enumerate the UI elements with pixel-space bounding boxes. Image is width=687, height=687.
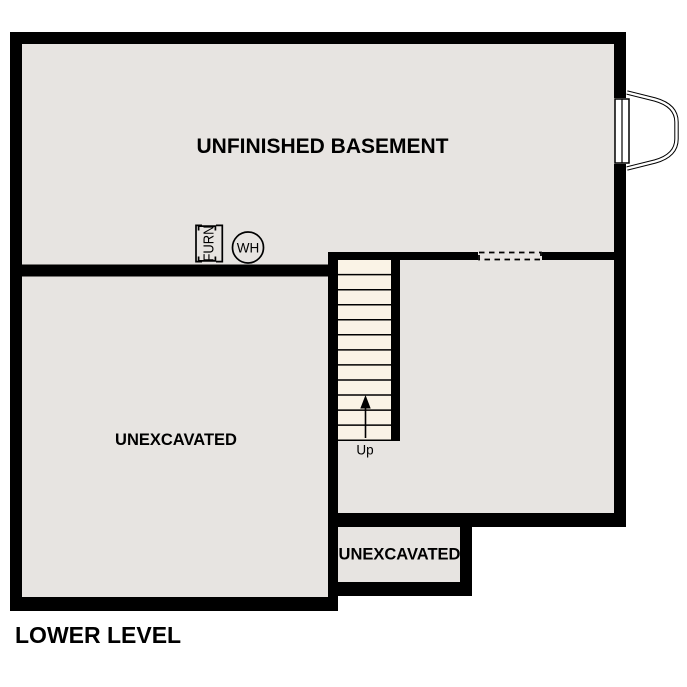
svg-text:LOWER LEVEL: LOWER LEVEL bbox=[15, 622, 181, 648]
svg-text:UNEXCAVATED: UNEXCAVATED bbox=[339, 546, 461, 564]
svg-text:UNEXCAVATED: UNEXCAVATED bbox=[115, 431, 237, 449]
svg-text:FURN: FURN bbox=[201, 226, 218, 262]
svg-text:UNFINISHED BASEMENT: UNFINISHED BASEMENT bbox=[196, 135, 448, 158]
svg-text:Up: Up bbox=[356, 443, 373, 458]
svg-text:WH: WH bbox=[237, 240, 260, 255]
